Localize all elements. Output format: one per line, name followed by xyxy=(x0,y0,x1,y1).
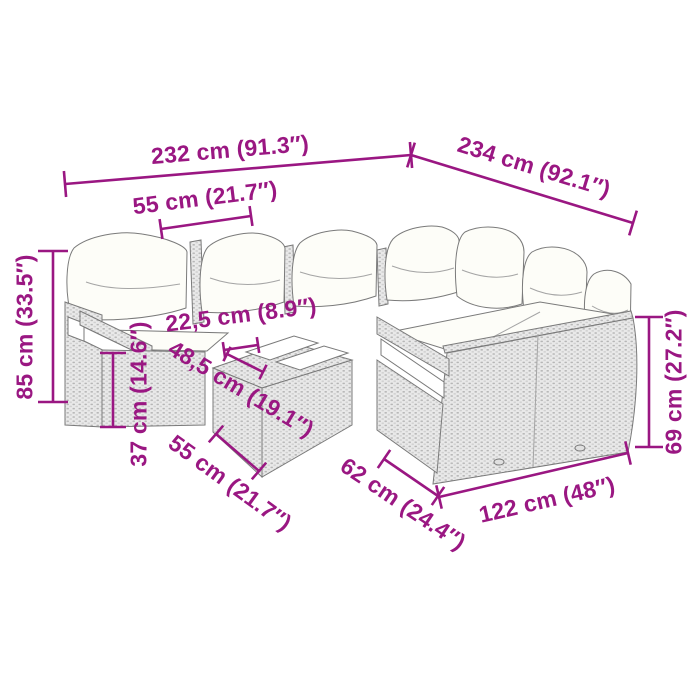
dim-tick xyxy=(160,219,163,239)
dim-tick xyxy=(64,171,66,197)
dim-tick xyxy=(378,450,390,468)
dim-line-seat-width xyxy=(161,216,251,229)
bench-foot xyxy=(494,459,504,465)
product-dimension-diagram: 232 cm (91.3″) 234 cm (92.1″) 55 cm (21.… xyxy=(0,0,700,700)
dim-label-seat-height: 37 cm (14.6″) xyxy=(126,321,153,466)
dim-tick xyxy=(250,206,253,226)
dim-label-back-height: 69 cm (27.2″) xyxy=(661,309,688,454)
dim-label-overall-height: 85 cm (33.5″) xyxy=(12,254,39,399)
sofa-line-art-canvas xyxy=(0,0,700,700)
bench-foot xyxy=(575,445,585,451)
